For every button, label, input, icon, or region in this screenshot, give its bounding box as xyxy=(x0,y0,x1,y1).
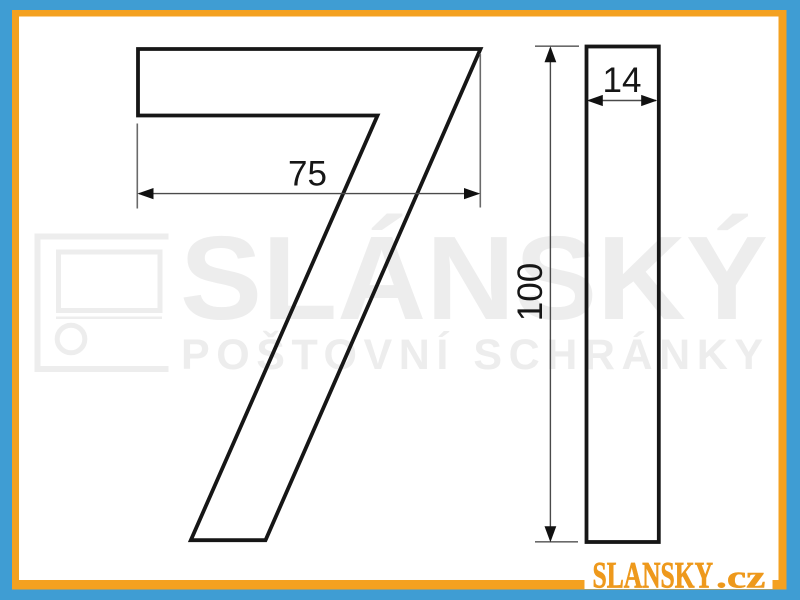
svg-text:SLANSKY: SLANSKY xyxy=(593,555,714,596)
svg-text:75: 75 xyxy=(288,155,327,194)
svg-text:100: 100 xyxy=(511,263,550,321)
svg-text:.cz: .cz xyxy=(716,560,765,595)
svg-text:SLÁNSKÝ: SLÁNSKÝ xyxy=(180,212,768,345)
svg-text:14: 14 xyxy=(603,61,642,100)
